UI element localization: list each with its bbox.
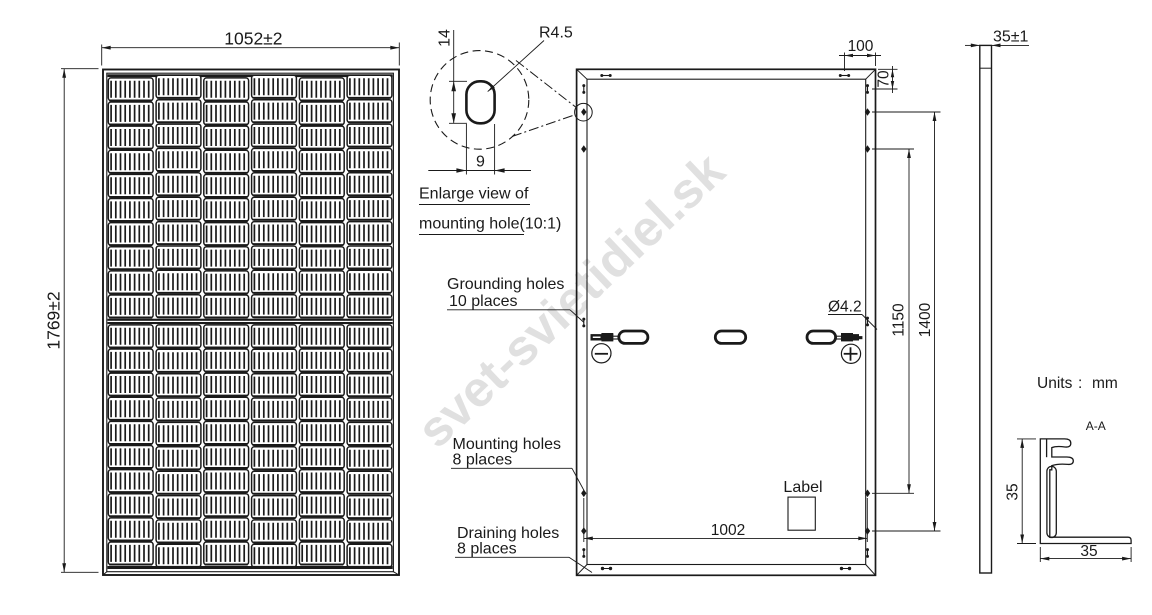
svg-text:Draining holes: Draining holes [457,525,559,542]
svg-text:mounting hole(10:1): mounting hole(10:1) [419,216,561,233]
svg-text:8 places: 8 places [453,452,513,469]
svg-text:R4.5: R4.5 [539,25,573,42]
svg-text:100: 100 [848,38,874,55]
svg-text:Mounting holes: Mounting holes [453,436,562,453]
svg-text:8 places: 8 places [457,541,517,558]
svg-text:Grounding holes: Grounding holes [447,276,564,293]
svg-text:A-A: A-A [1086,419,1106,433]
svg-text:1052±2: 1052±2 [224,29,282,49]
svg-text:mm: mm [1092,375,1118,392]
svg-text:Units: Units [1037,375,1073,392]
svg-text:Ø4.2: Ø4.2 [828,299,862,316]
svg-text:70: 70 [876,70,893,88]
svg-text:1150: 1150 [891,303,908,337]
svg-text:14: 14 [437,29,454,47]
svg-text:1769±2: 1769±2 [44,291,64,349]
svg-text:35±1: 35±1 [993,29,1029,46]
svg-text:Enlarge view of: Enlarge view of [419,186,529,203]
svg-text:Label: Label [783,479,822,496]
svg-text:1400: 1400 [917,302,934,337]
svg-text:1002: 1002 [711,522,745,539]
svg-text:35: 35 [1080,543,1097,560]
svg-text:10 places: 10 places [449,293,518,310]
svg-text:35: 35 [1005,483,1022,500]
svg-text::: : [1078,375,1082,392]
svg-text:9: 9 [476,154,485,171]
